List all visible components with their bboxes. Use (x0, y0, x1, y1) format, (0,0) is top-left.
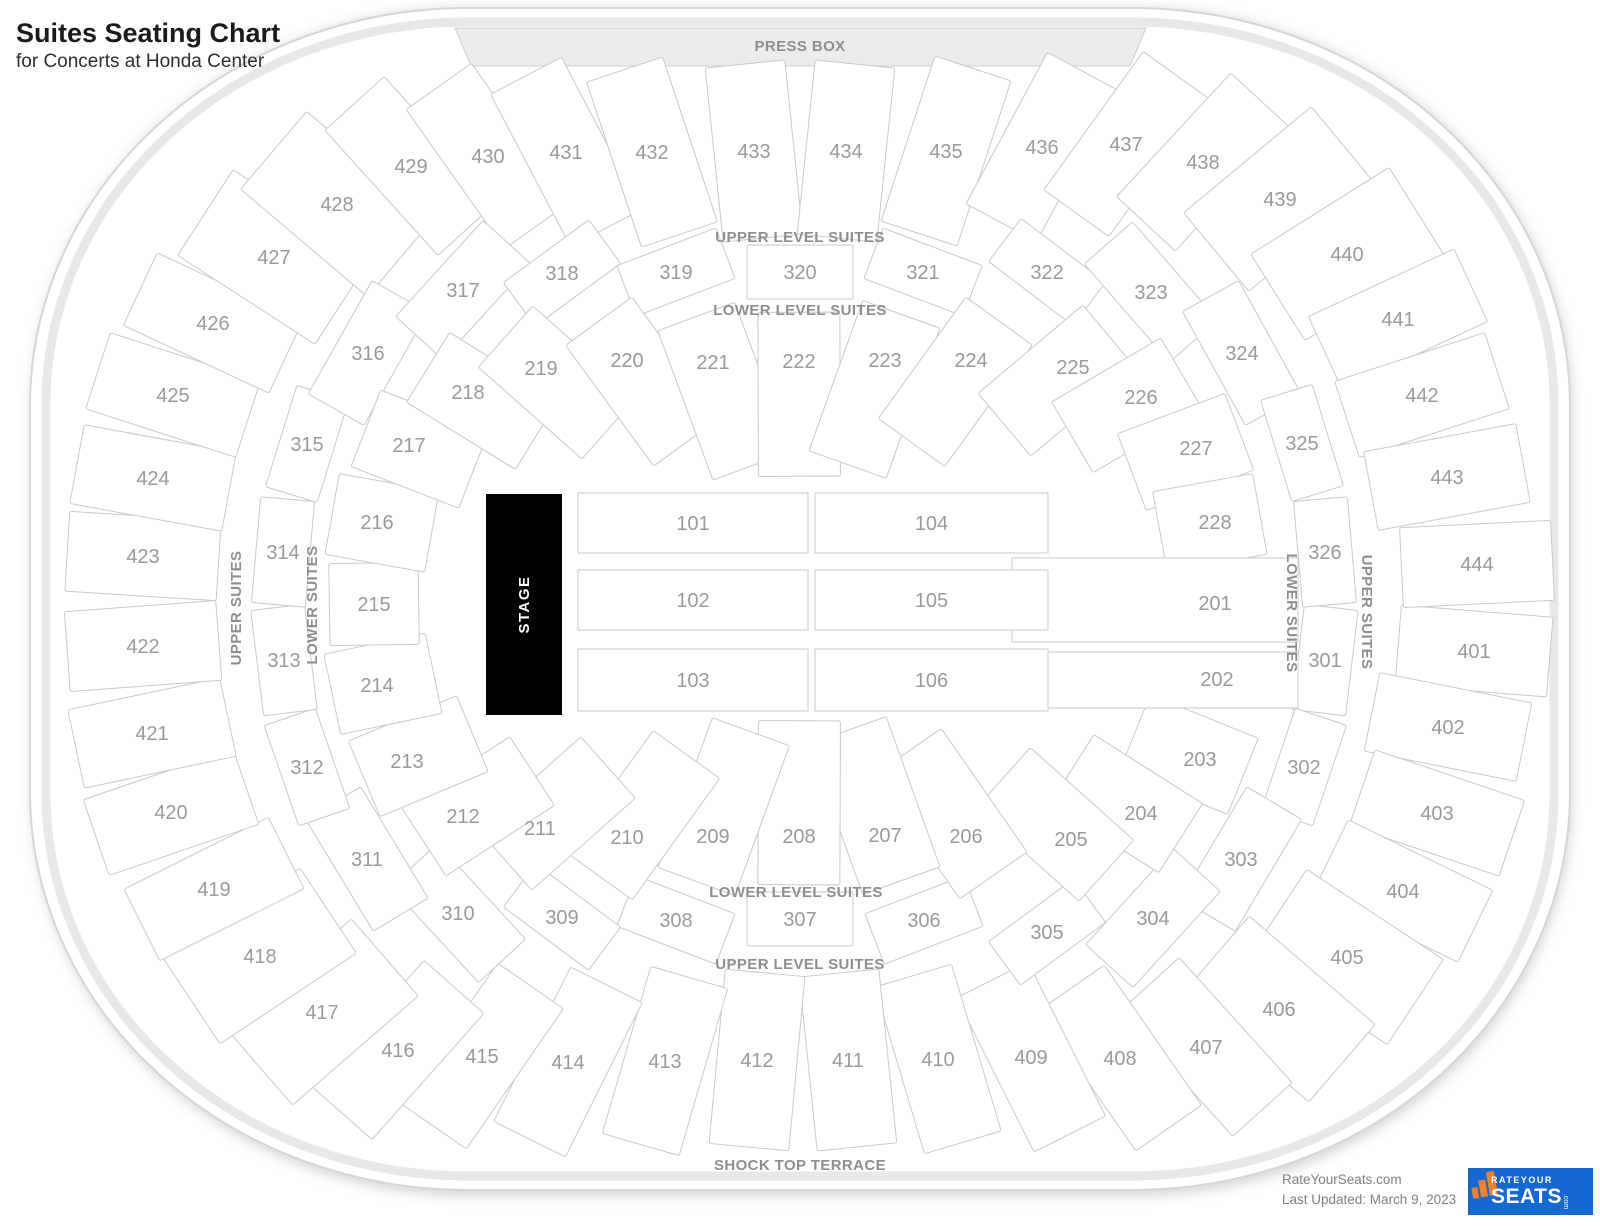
section-label-313: 313 (267, 650, 300, 672)
section-label-406: 406 (1262, 999, 1295, 1021)
section-label-325: 325 (1285, 433, 1318, 455)
section-label-211: 211 (524, 818, 556, 840)
section-label-414: 414 (551, 1052, 584, 1074)
page-subtitle: for Concerts at Honda Center (16, 51, 280, 74)
section-label-220: 220 (610, 350, 643, 372)
section-label-104: 104 (915, 513, 948, 535)
section-label-306: 306 (907, 910, 940, 932)
section-label-320: 320 (783, 262, 816, 284)
section-label-218: 218 (451, 382, 484, 404)
section-label-429: 429 (394, 156, 427, 178)
section-label-420: 420 (154, 802, 187, 824)
ring-label-shock-top-terrace: SHOCK TOP TERRACE (714, 1157, 886, 1174)
section-label-319: 319 (659, 262, 692, 284)
ring-label-lower-level-suites-bottom: LOWER LEVEL SUITES (709, 884, 883, 901)
section-label-430: 430 (471, 146, 504, 168)
press-box-label: PRESS BOX (754, 38, 845, 55)
section-label-201: 201 (1198, 593, 1231, 615)
section-label-219: 219 (524, 358, 557, 380)
section-label-441: 441 (1381, 309, 1414, 331)
seating-chart-page: 4014024034044054064074084094104114124134… (0, 0, 1600, 1226)
section-label-413: 413 (648, 1051, 681, 1073)
section-label-403: 403 (1420, 803, 1453, 825)
section-label-103: 103 (676, 670, 709, 692)
section-label-426: 426 (196, 313, 229, 335)
section-202[interactable] (1040, 652, 1298, 708)
section-label-214: 214 (360, 675, 393, 697)
section-label-424: 424 (136, 468, 169, 490)
section-label-205: 205 (1054, 829, 1087, 851)
section-label-440: 440 (1330, 244, 1363, 266)
section-label-412: 412 (740, 1050, 773, 1072)
section-label-437: 437 (1109, 134, 1142, 156)
section-label-227: 227 (1179, 438, 1212, 460)
ring-label-lower-suites-right: LOWER SUITES (1283, 554, 1300, 673)
ring-label-lower-suites-left: LOWER SUITES (304, 546, 321, 665)
section-label-401: 401 (1457, 641, 1490, 663)
ring-label-upper-suites-right: UPPER SUITES (1358, 555, 1375, 670)
section-label-309: 309 (545, 907, 578, 929)
rateyourseats-logo: RATEYOUR SEATS .com (1468, 1168, 1593, 1215)
section-label-310: 310 (441, 903, 474, 925)
seating-chart-canvas: 4014024034044054064074084094104114124134… (0, 0, 1600, 1226)
section-label-303: 303 (1224, 849, 1257, 871)
section-label-427: 427 (257, 247, 290, 269)
section-label-301: 301 (1308, 650, 1341, 672)
section-label-435: 435 (929, 141, 962, 163)
section-label-224: 224 (954, 350, 987, 372)
section-shape-202 (1040, 652, 1298, 708)
section-label-405: 405 (1330, 947, 1363, 969)
section-label-438: 438 (1186, 152, 1219, 174)
section-label-212: 212 (446, 806, 479, 828)
section-label-302: 302 (1287, 757, 1320, 779)
section-label-434: 434 (829, 141, 862, 163)
credits-site: RateYourSeats.com (1282, 1170, 1456, 1190)
section-label-411: 411 (832, 1050, 864, 1072)
section-label-322: 322 (1030, 262, 1063, 284)
section-label-308: 308 (659, 910, 692, 932)
section-label-223: 223 (868, 350, 901, 372)
section-label-206: 206 (949, 826, 982, 848)
section-label-404: 404 (1386, 881, 1419, 903)
section-label-315: 315 (290, 434, 323, 456)
section-201[interactable] (1012, 558, 1298, 642)
section-label-222: 222 (782, 351, 815, 373)
section-label-421: 421 (135, 723, 168, 745)
section-label-209: 209 (696, 826, 729, 848)
section-label-317: 317 (446, 280, 479, 302)
section-label-225: 225 (1056, 357, 1089, 379)
section-label-321: 321 (906, 262, 939, 284)
section-label-221: 221 (696, 352, 729, 374)
section-label-226: 226 (1124, 387, 1157, 409)
section-label-419: 419 (197, 879, 230, 901)
section-label-217: 217 (392, 435, 425, 457)
section-label-316: 316 (351, 343, 384, 365)
section-label-416: 416 (381, 1040, 414, 1062)
section-label-106: 106 (915, 670, 948, 692)
page-title: Suites Seating Chart (16, 18, 280, 49)
section-label-207: 207 (868, 825, 901, 847)
section-label-431: 431 (549, 142, 582, 164)
section-label-442: 442 (1405, 385, 1438, 407)
section-label-428: 428 (320, 194, 353, 216)
section-label-304: 304 (1136, 908, 1169, 930)
section-label-210: 210 (610, 827, 643, 849)
section-label-409: 409 (1014, 1047, 1047, 1069)
section-label-204: 204 (1124, 803, 1157, 825)
section-label-407: 407 (1189, 1037, 1222, 1059)
ring-label-upper-level-suites-bottom: UPPER LEVEL SUITES (715, 956, 884, 973)
section-label-433: 433 (737, 141, 770, 163)
credits-updated: Last Updated: March 9, 2023 (1282, 1190, 1456, 1210)
section-label-324: 324 (1225, 343, 1258, 365)
section-label-314: 314 (266, 542, 299, 564)
ring-label-lower-level-suites-top: LOWER LEVEL SUITES (713, 302, 887, 319)
section-label-102: 102 (676, 590, 709, 612)
section-label-105: 105 (915, 590, 948, 612)
section-label-202: 202 (1200, 669, 1233, 691)
section-label-228: 228 (1198, 512, 1231, 534)
section-label-417: 417 (305, 1002, 338, 1024)
section-label-215: 215 (357, 594, 390, 616)
logo-line2: SEATS (1491, 1186, 1562, 1207)
section-label-312: 312 (290, 757, 323, 779)
section-label-326: 326 (1308, 542, 1341, 564)
section-label-443: 443 (1430, 467, 1463, 489)
section-label-415: 415 (465, 1046, 498, 1068)
section-label-101: 101 (676, 513, 709, 535)
logo-line1: RATEYOUR (1491, 1176, 1562, 1185)
section-label-408: 408 (1103, 1048, 1136, 1070)
section-label-323: 323 (1134, 282, 1167, 304)
section-label-410: 410 (921, 1049, 954, 1071)
logo-text: RATEYOUR SEATS .com (1491, 1176, 1570, 1207)
credits: RateYourSeats.com Last Updated: March 9,… (1282, 1170, 1456, 1210)
section-label-307: 307 (783, 909, 816, 931)
logo-suffix: .com (1562, 1194, 1569, 1209)
section-label-432: 432 (635, 142, 668, 164)
ring-label-upper-level-suites-top: UPPER LEVEL SUITES (715, 229, 884, 246)
section-shape-201 (1012, 558, 1298, 642)
section-label-425: 425 (156, 385, 189, 407)
section-label-305: 305 (1030, 922, 1063, 944)
section-label-208: 208 (782, 826, 815, 848)
title-block: Suites Seating Chart for Concerts at Hon… (16, 18, 280, 74)
section-label-213: 213 (390, 751, 423, 773)
section-label-203: 203 (1183, 749, 1216, 771)
section-label-216: 216 (360, 512, 393, 534)
ring-label-upper-suites-left: UPPER SUITES (228, 551, 245, 666)
section-label-402: 402 (1431, 717, 1464, 739)
section-label-418: 418 (243, 946, 276, 968)
stage-label: STAGE (516, 575, 533, 633)
section-label-318: 318 (545, 263, 578, 285)
section-label-439: 439 (1263, 189, 1296, 211)
section-label-422: 422 (126, 636, 159, 658)
section-label-423: 423 (126, 546, 159, 568)
section-label-436: 436 (1025, 137, 1058, 159)
section-label-311: 311 (351, 849, 383, 871)
section-label-444: 444 (1460, 554, 1493, 576)
